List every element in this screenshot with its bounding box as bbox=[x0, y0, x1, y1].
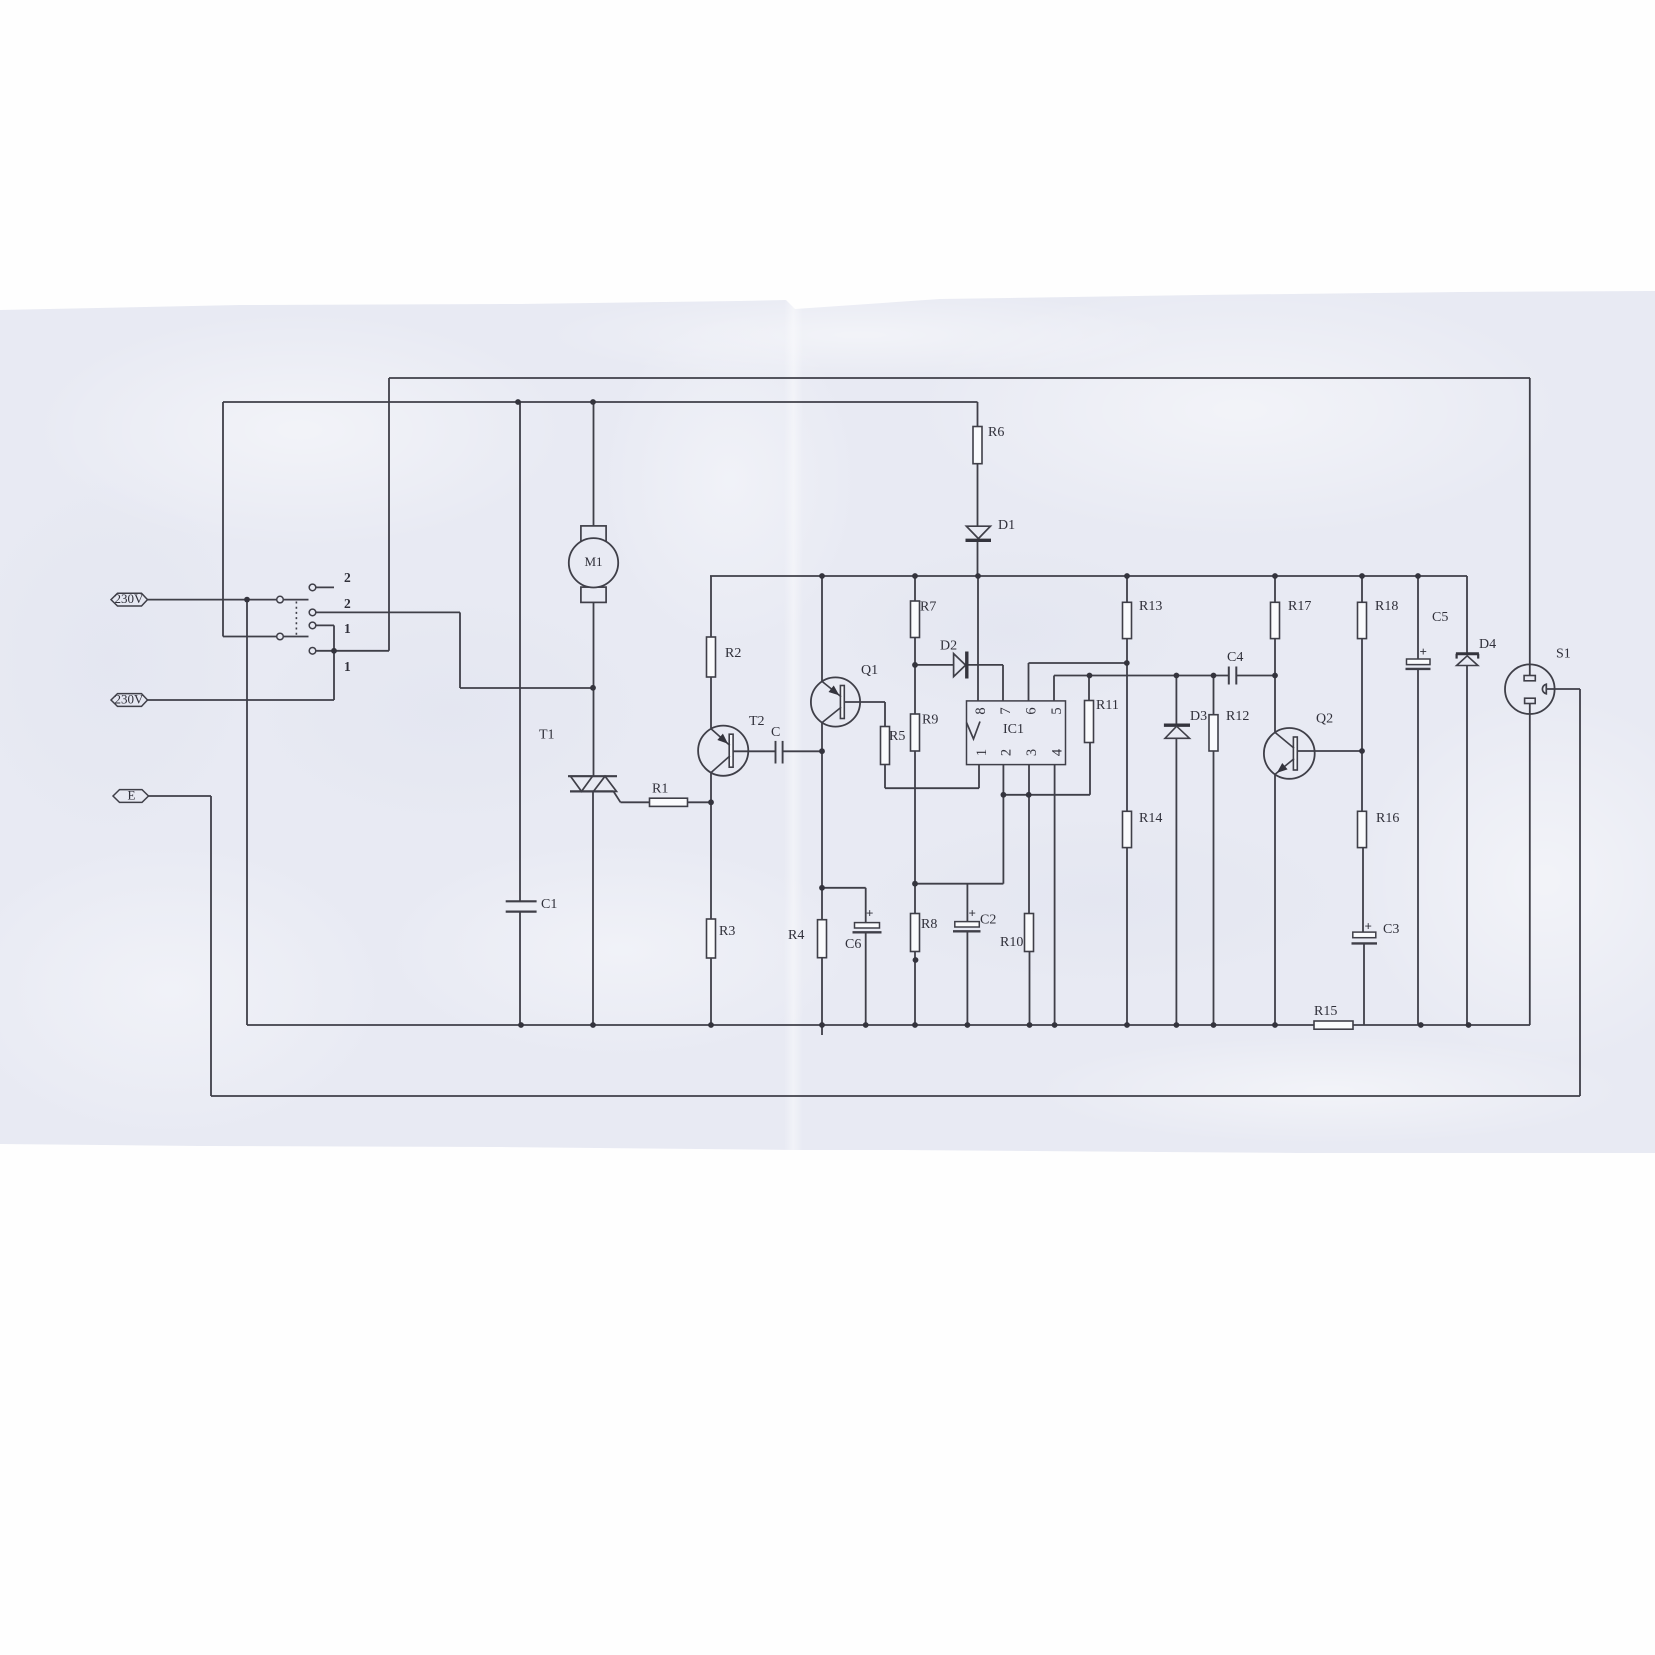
svg-text:S1: S1 bbox=[1556, 647, 1571, 662]
svg-text:C1: C1 bbox=[541, 897, 557, 912]
svg-text:+: + bbox=[866, 905, 873, 920]
svg-text:R10: R10 bbox=[1000, 935, 1023, 950]
svg-text:3: 3 bbox=[1024, 749, 1040, 756]
svg-text:C: C bbox=[771, 725, 780, 740]
svg-text:R18: R18 bbox=[1375, 599, 1398, 614]
svg-text:R11: R11 bbox=[1096, 698, 1119, 713]
svg-text:1: 1 bbox=[344, 659, 351, 674]
svg-text:IC1: IC1 bbox=[1003, 722, 1024, 737]
svg-text:D2: D2 bbox=[940, 639, 957, 654]
svg-text:230V: 230V bbox=[115, 691, 145, 706]
svg-text:R12: R12 bbox=[1226, 709, 1249, 724]
svg-text:C5: C5 bbox=[1432, 610, 1448, 625]
svg-text:+: + bbox=[969, 905, 976, 920]
svg-text:230V: 230V bbox=[115, 591, 145, 606]
svg-text:R3: R3 bbox=[719, 924, 735, 939]
svg-text:+: + bbox=[1365, 918, 1372, 933]
svg-text:R16: R16 bbox=[1376, 811, 1399, 826]
svg-text:E: E bbox=[128, 787, 136, 802]
svg-text:2: 2 bbox=[344, 596, 351, 611]
svg-text:1: 1 bbox=[974, 749, 990, 756]
svg-text:R2: R2 bbox=[725, 646, 741, 661]
svg-text:D3: D3 bbox=[1190, 709, 1207, 724]
svg-text:R6: R6 bbox=[988, 425, 1004, 440]
svg-text:T2: T2 bbox=[749, 714, 765, 729]
svg-text:Q2: Q2 bbox=[1316, 712, 1333, 727]
svg-text:Q1: Q1 bbox=[861, 663, 878, 678]
svg-text:+: + bbox=[1420, 644, 1427, 659]
svg-text:2: 2 bbox=[344, 570, 351, 585]
svg-text:8: 8 bbox=[973, 707, 989, 714]
svg-text:6: 6 bbox=[1024, 707, 1040, 714]
svg-text:2: 2 bbox=[999, 749, 1015, 756]
svg-text:R9: R9 bbox=[922, 713, 938, 728]
svg-text:T1: T1 bbox=[539, 728, 555, 743]
svg-text:R5: R5 bbox=[889, 729, 905, 744]
svg-text:R14: R14 bbox=[1139, 811, 1162, 826]
svg-text:1: 1 bbox=[344, 621, 351, 636]
svg-text:R15: R15 bbox=[1314, 1004, 1337, 1019]
svg-text:5: 5 bbox=[1049, 707, 1065, 714]
svg-text:R8: R8 bbox=[921, 917, 937, 932]
svg-text:4: 4 bbox=[1050, 748, 1066, 756]
svg-text:D1: D1 bbox=[998, 518, 1015, 533]
svg-text:M1: M1 bbox=[584, 554, 602, 569]
svg-text:C6: C6 bbox=[845, 937, 861, 952]
svg-text:R17: R17 bbox=[1288, 599, 1311, 614]
svg-text:R13: R13 bbox=[1139, 599, 1162, 614]
svg-text:7: 7 bbox=[998, 707, 1014, 714]
svg-text:C4: C4 bbox=[1227, 650, 1243, 665]
svg-text:C3: C3 bbox=[1383, 922, 1399, 937]
svg-text:C2: C2 bbox=[980, 913, 996, 928]
svg-text:R1: R1 bbox=[652, 782, 668, 797]
svg-text:R4: R4 bbox=[788, 928, 804, 943]
svg-text:R7: R7 bbox=[920, 600, 936, 615]
svg-text:D4: D4 bbox=[1479, 637, 1496, 652]
